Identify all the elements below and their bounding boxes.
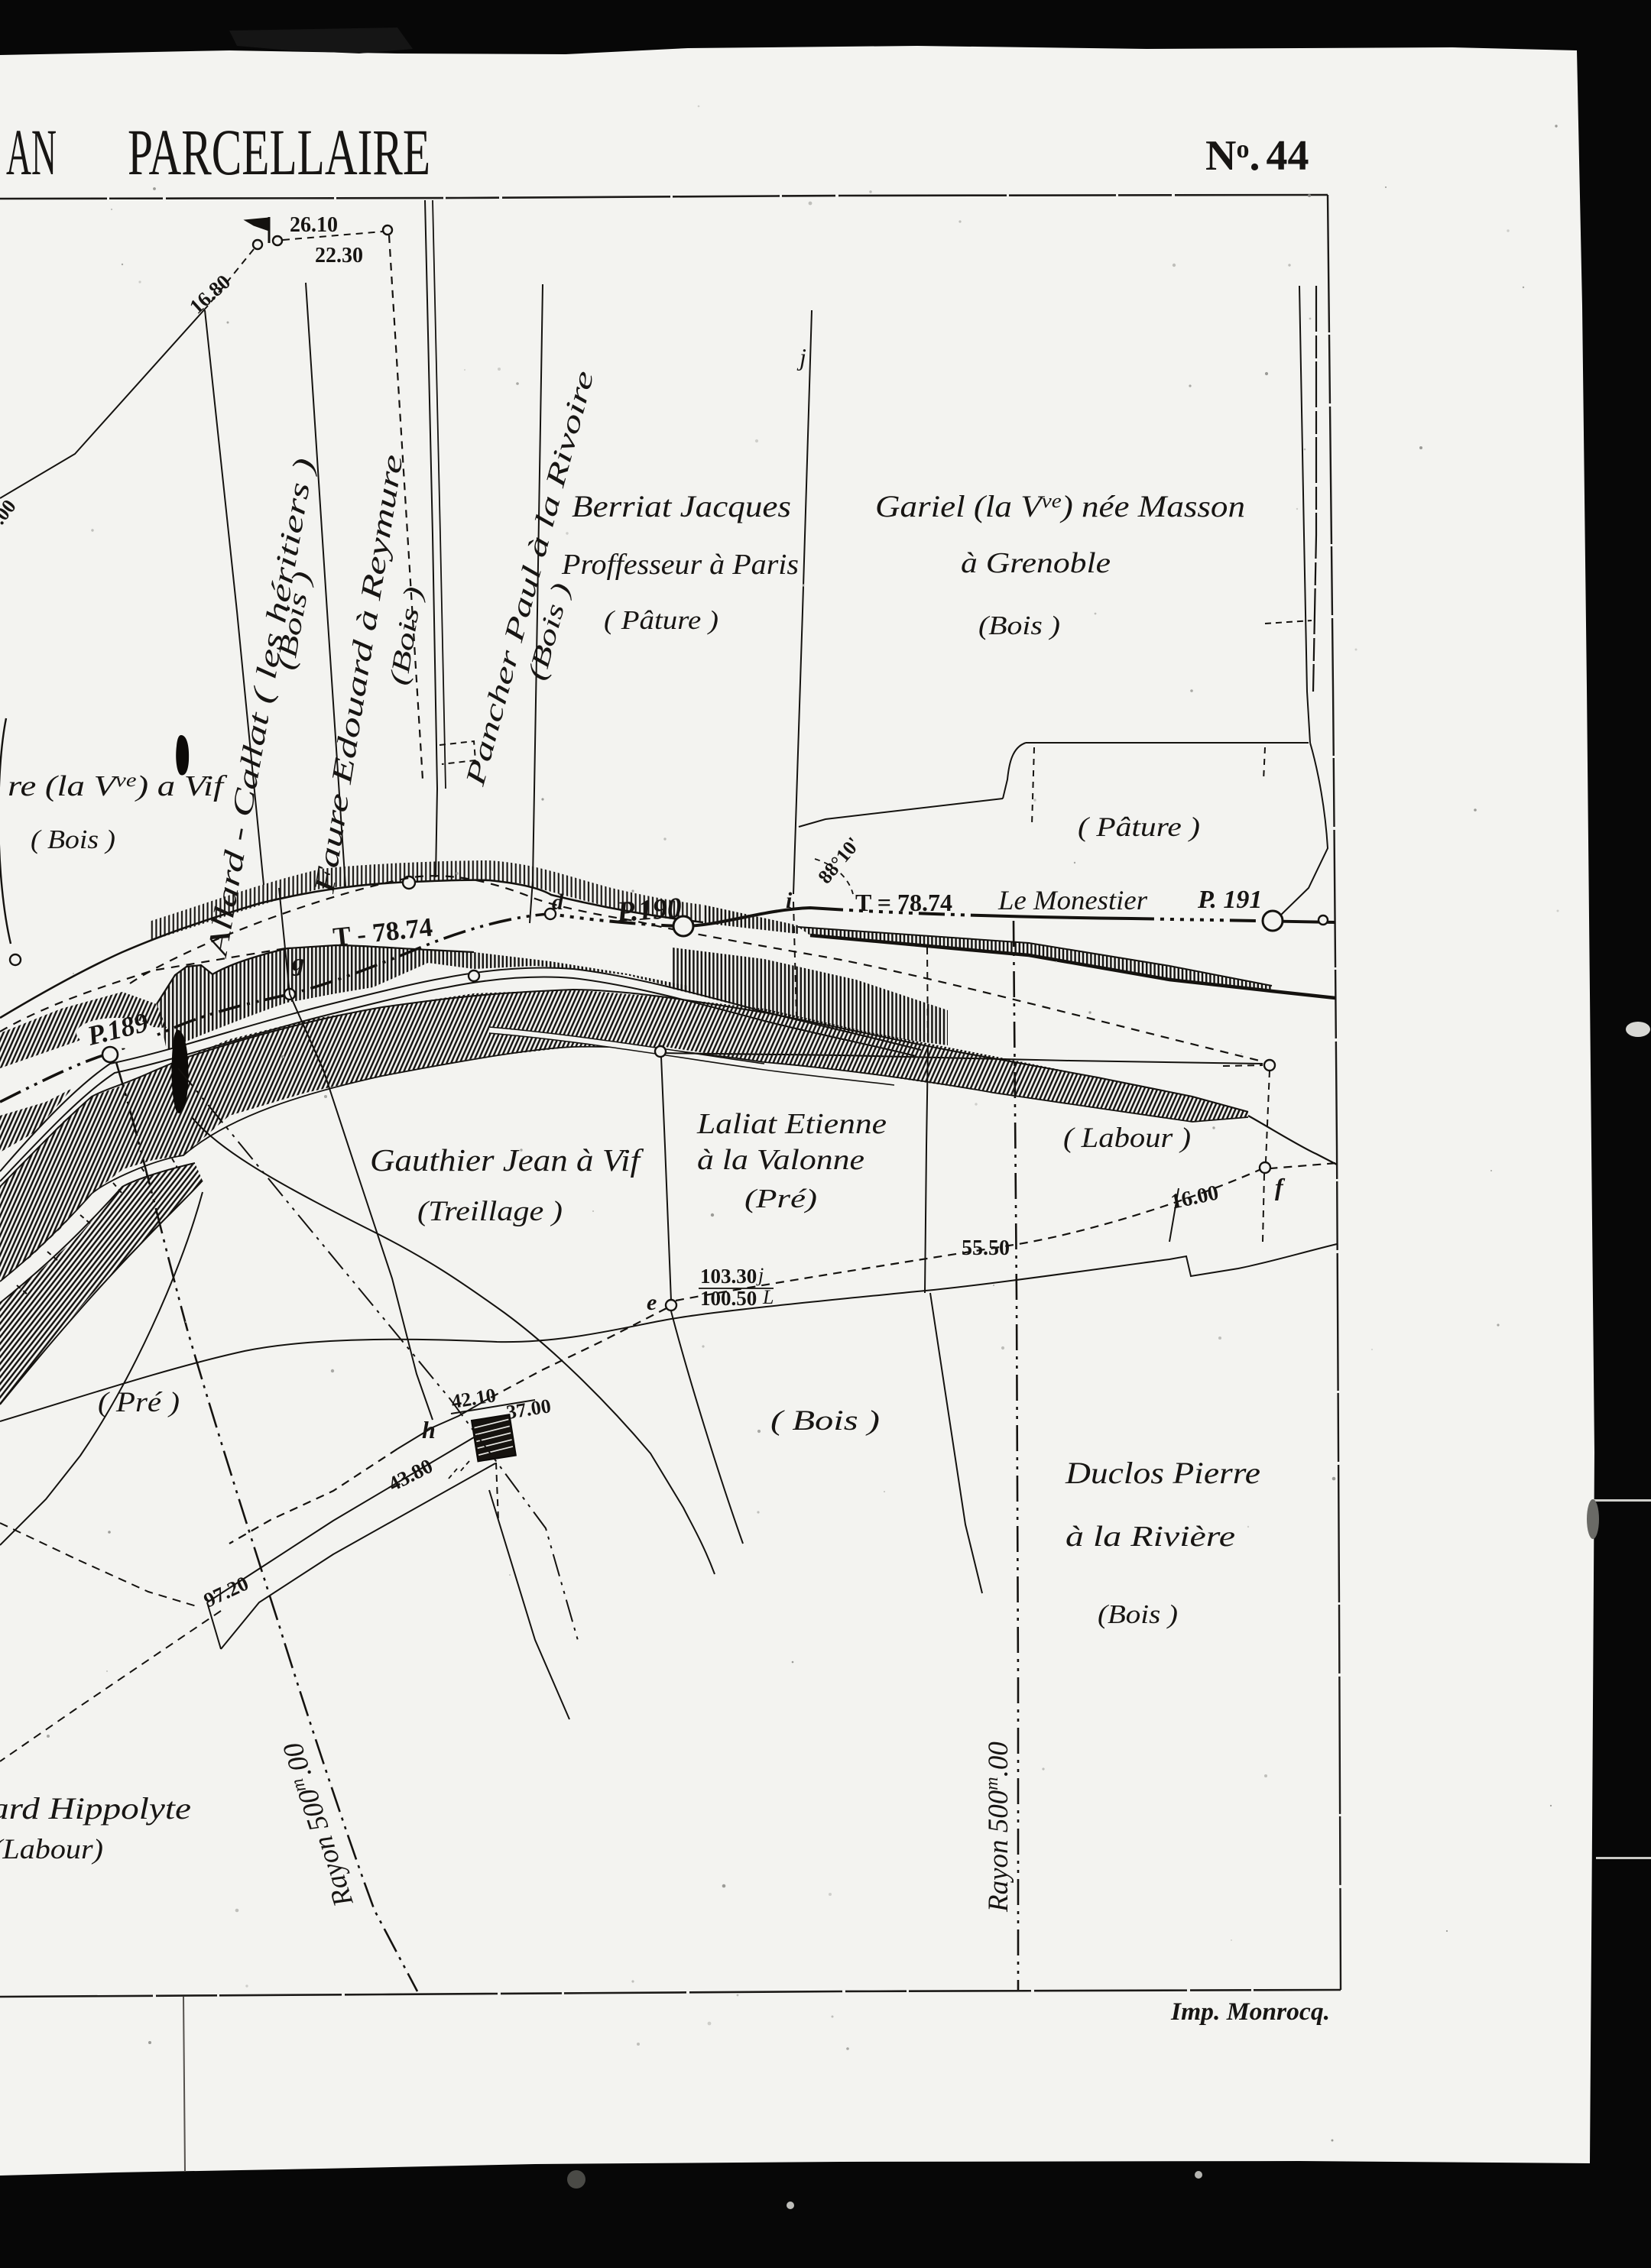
- svg-text:(Labour): (Labour): [0, 1834, 103, 1865]
- svg-text:h: h: [422, 1416, 436, 1443]
- svg-text:100.50: 100.50: [700, 1287, 757, 1310]
- svg-text:103.30: 103.30: [700, 1265, 757, 1288]
- svg-text:Imp. Monrocq.: Imp. Monrocq.: [1170, 1998, 1330, 2026]
- svg-text:AN: AN: [6, 115, 57, 189]
- svg-text:Gauthier Jean à Vif: Gauthier Jean à Vif: [370, 1142, 644, 1178]
- svg-text:Laliat Etienne: Laliat Etienne: [696, 1108, 887, 1140]
- svg-text:à Grenoble: à Grenoble: [961, 547, 1111, 579]
- svg-text:( Pré ): ( Pré ): [98, 1387, 180, 1418]
- svg-text:Le Monestier: Le Monestier: [997, 885, 1148, 915]
- svg-text:( Pâture ): ( Pâture ): [604, 605, 718, 635]
- svg-text:26.10: 26.10: [290, 213, 338, 237]
- svg-text:e: e: [647, 1290, 657, 1315]
- svg-text:55.50: 55.50: [962, 1236, 1010, 1260]
- svg-text:Berriat Jacques: Berriat Jacques: [572, 489, 791, 523]
- svg-text:( Bois ): ( Bois ): [31, 825, 115, 854]
- svg-text:No.44: No.44: [1205, 132, 1309, 180]
- svg-text:i: i: [786, 888, 793, 913]
- svg-text:à la Rivière: à la Rivière: [1066, 1521, 1235, 1553]
- svg-text:g: g: [291, 948, 304, 976]
- svg-text:(Bois ): (Bois ): [978, 611, 1060, 640]
- svg-text:P.190: P.190: [615, 892, 683, 928]
- svg-text:22.30: 22.30: [315, 244, 363, 267]
- svg-text:L: L: [762, 1286, 774, 1308]
- svg-text:Proffesseur à Paris: Proffesseur à Paris: [561, 549, 799, 581]
- svg-text:Rayon 500m.00: Rayon 500m.00: [982, 1742, 1014, 1913]
- svg-text:(Treillage ): (Treillage ): [417, 1196, 563, 1227]
- svg-text:T = 78.74: T = 78.74: [855, 889, 952, 916]
- svg-text:( Bois ): ( Bois ): [770, 1405, 880, 1437]
- svg-text:P. 191: P. 191: [1197, 886, 1262, 914]
- svg-text:d: d: [552, 889, 564, 915]
- svg-text:à la Valonne: à la Valonne: [697, 1144, 864, 1176]
- svg-text:( Pâture ): ( Pâture ): [1078, 812, 1200, 842]
- svg-text:PARCELLAIRE: PARCELLAIRE: [128, 115, 430, 189]
- svg-text:ard Hippolyte: ard Hippolyte: [0, 1791, 191, 1826]
- svg-text:(Pré): (Pré): [744, 1184, 817, 1213]
- svg-text:(Bois ): (Bois ): [1098, 1599, 1178, 1629]
- svg-text:Duclos Pierre: Duclos Pierre: [1065, 1456, 1260, 1490]
- svg-text:( Labour ): ( Labour ): [1063, 1123, 1191, 1154]
